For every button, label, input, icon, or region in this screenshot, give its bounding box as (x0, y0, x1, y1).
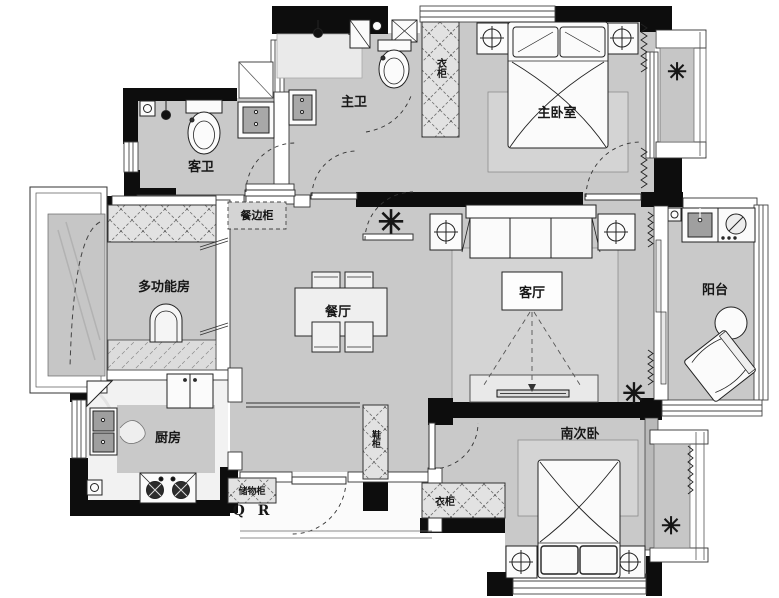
floor-plan: ✳ ✳ ✳ ✳ 客卫 主卫 主卧室 衣柜 多功能房 餐边柜 餐厅 客厅 阳台 厨… (0, 0, 779, 598)
double-bed (538, 460, 620, 578)
double-bed (508, 22, 608, 148)
dining-label: 餐厅 (324, 304, 351, 319)
multi-room-cabinet (108, 205, 216, 242)
storage-label: 储物柜 (238, 485, 265, 496)
balcony-east-window (754, 205, 768, 400)
dining-chair (345, 322, 373, 352)
kitchen-sink (90, 408, 117, 455)
sofa (462, 205, 600, 258)
nightstand-left (506, 546, 537, 578)
northeast-bay-window (656, 30, 706, 158)
brand-mark: Q R (233, 503, 274, 519)
toilet (186, 100, 222, 154)
kitchen-label: 厨房 (155, 430, 181, 445)
vanity-sink (289, 90, 316, 125)
west-bay-window (30, 187, 107, 393)
dining-chair (312, 322, 340, 352)
multi-room-desk (108, 340, 216, 370)
master-wardrobe-cabinet (422, 22, 459, 137)
living-label: 客厅 (519, 285, 545, 300)
vanity-sink (238, 102, 274, 138)
southeast-bay-window (650, 430, 708, 562)
guest-bath-label: 客卫 (188, 159, 214, 174)
gas-stove (140, 473, 196, 503)
toilet (378, 40, 411, 88)
duct-shaft (239, 62, 273, 98)
plant-icon: ✳ (378, 204, 405, 240)
floor-drain (87, 480, 102, 495)
washing-machine (718, 208, 755, 242)
laundry-sink (682, 208, 718, 242)
shoe-cabinet-label: 鞋柜 (371, 429, 382, 449)
nightstand-right (607, 23, 638, 54)
master-bedroom-north-window (420, 6, 555, 22)
nightstand-left (477, 23, 508, 54)
side-table-left (430, 214, 462, 250)
guest-bath-window (124, 142, 138, 172)
plant-icon: ✳ (622, 378, 645, 409)
shower-area (277, 34, 362, 78)
multi-room-label: 多功能房 (138, 279, 190, 294)
fridge (167, 374, 213, 408)
plant-icon: ✳ (661, 513, 681, 540)
kitchen-window (72, 400, 86, 458)
floor-plan-drawing: ✳ ✳ ✳ ✳ 客卫 主卫 主卧室 衣柜 多功能房 餐边柜 餐厅 客厅 阳台 厨… (0, 0, 779, 598)
plant-icon: ✳ (667, 59, 687, 86)
master-bedroom-label: 主卧室 (537, 105, 576, 120)
floor-drain (140, 101, 155, 116)
tv-unit (470, 375, 598, 402)
balcony-label: 阳台 (702, 282, 728, 297)
south-bedroom-label: 南次卧 (560, 426, 599, 441)
balcony-south-window (662, 400, 762, 416)
master-bath-label: 主卫 (341, 94, 367, 109)
sideboard-label: 餐边柜 (240, 208, 274, 222)
south-wardrobe-label: 衣柜 (435, 495, 455, 508)
side-table-right (598, 214, 635, 250)
sliding-door (654, 206, 668, 400)
floor-drain (668, 208, 681, 221)
